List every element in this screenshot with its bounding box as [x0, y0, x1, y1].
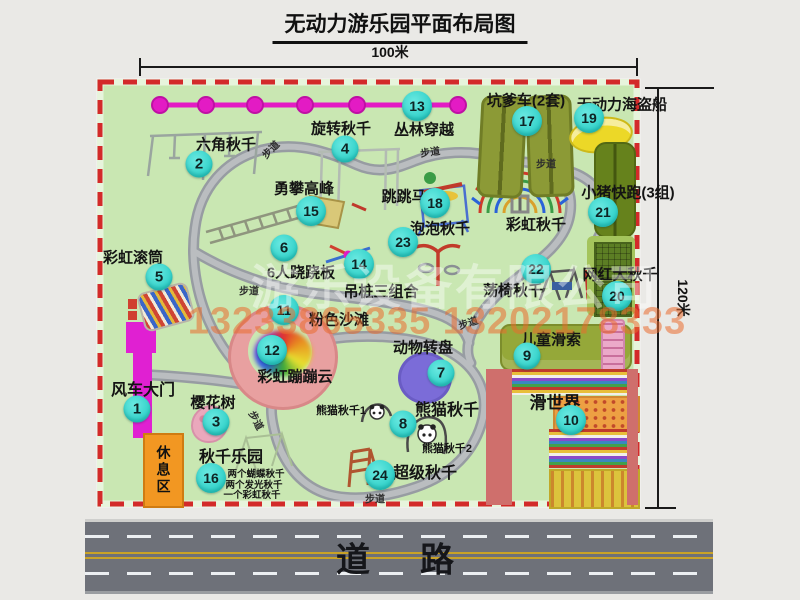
sakura-tree [191, 405, 228, 443]
slide-world-stripes-bottom [549, 429, 636, 468]
gate-mark-1 [128, 299, 137, 309]
rest-area-label: 休息区 [154, 445, 174, 496]
windmill-gate-stem [133, 353, 152, 438]
rest-area: 休息区 [143, 433, 184, 508]
pit-cart-track-2 [525, 94, 575, 198]
pit-cart-track-1 [476, 95, 527, 199]
park-plan-image: 无动力游乐园平面布局图 100米 120米 [0, 0, 800, 600]
slide-world-stripes-top [512, 369, 635, 395]
slide-world-right-stripe [627, 369, 638, 505]
rainbow-swing-label: 彩虹秋千 [506, 214, 566, 235]
phone-watermark: 13233865335 13202178333 [188, 301, 687, 344]
gate-mark-2 [128, 311, 137, 320]
road: 道 路 [85, 519, 713, 594]
page-title: 无动力游乐园平面布局图 [273, 8, 528, 44]
road-label: 道 路 [336, 532, 462, 581]
width-dimension-label: 100米 [371, 42, 408, 62]
animal-turntable [398, 352, 452, 404]
slide-world-left-stripe [486, 369, 512, 505]
pig-run-track [594, 142, 636, 238]
